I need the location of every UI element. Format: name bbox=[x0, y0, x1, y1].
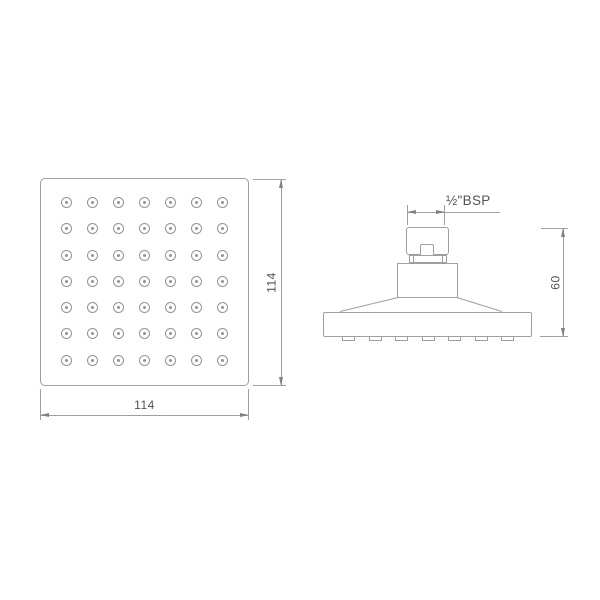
nozzle-tab bbox=[422, 337, 435, 341]
nozzle bbox=[113, 250, 124, 261]
nozzle-tab bbox=[395, 337, 408, 341]
nozzle-center-dot bbox=[65, 306, 68, 309]
nozzle bbox=[139, 197, 150, 208]
nozzle-center-dot bbox=[65, 332, 68, 335]
nozzle-center-dot bbox=[143, 306, 146, 309]
nozzle-center-dot bbox=[91, 306, 94, 309]
collar-facet-line-right bbox=[442, 255, 443, 263]
width-dim-arrow-right-icon bbox=[240, 413, 249, 417]
nozzle bbox=[113, 197, 124, 208]
nozzle-center-dot bbox=[221, 280, 224, 283]
nozzle bbox=[87, 302, 98, 313]
nozzle-tab bbox=[369, 337, 382, 341]
nozzle-center-dot bbox=[169, 332, 172, 335]
nozzle bbox=[217, 328, 228, 339]
width-dim-line bbox=[40, 415, 249, 416]
nozzle bbox=[191, 250, 202, 261]
head-plate-outline bbox=[323, 312, 532, 337]
nozzle-center-dot bbox=[221, 227, 224, 230]
nozzle-center-dot bbox=[169, 254, 172, 257]
nozzle bbox=[217, 302, 228, 313]
technical-drawing-canvas: 114 114 ½"BSP bbox=[0, 0, 600, 600]
thread-dim-extension-line-right bbox=[444, 205, 445, 225]
nozzle-center-dot bbox=[91, 359, 94, 362]
thread-dim-line bbox=[407, 212, 500, 213]
thread-size-label: ½"BSP bbox=[446, 193, 491, 208]
nozzle-center-dot bbox=[169, 306, 172, 309]
height-dim-arrow-down-icon bbox=[279, 377, 283, 386]
height-dim-arrow-up-icon bbox=[279, 179, 283, 188]
nozzle-center-dot bbox=[195, 332, 198, 335]
nozzle bbox=[217, 197, 228, 208]
nozzle bbox=[87, 223, 98, 234]
nozzle bbox=[165, 328, 176, 339]
nozzle bbox=[139, 250, 150, 261]
nozzle-center-dot bbox=[221, 306, 224, 309]
nozzle-center-dot bbox=[91, 280, 94, 283]
nozzle bbox=[61, 355, 72, 366]
flare-line-left bbox=[340, 297, 398, 312]
nozzle bbox=[61, 328, 72, 339]
nozzle bbox=[61, 250, 72, 261]
nozzle-center-dot bbox=[117, 332, 120, 335]
nozzle bbox=[139, 276, 150, 287]
nozzle bbox=[87, 276, 98, 287]
nozzle-tab-row bbox=[342, 337, 514, 341]
nozzle-center-dot bbox=[91, 332, 94, 335]
nozzle bbox=[217, 276, 228, 287]
nozzle-tab bbox=[342, 337, 355, 341]
nozzle bbox=[191, 197, 202, 208]
thread-dim-arrow-left-icon bbox=[407, 210, 416, 214]
nozzle-center-dot bbox=[195, 227, 198, 230]
height-dim-line bbox=[281, 179, 282, 386]
nozzle bbox=[191, 328, 202, 339]
nozzle bbox=[113, 328, 124, 339]
nozzle-center-dot bbox=[169, 359, 172, 362]
nozzle bbox=[217, 250, 228, 261]
nozzle-center-dot bbox=[143, 201, 146, 204]
nozzle bbox=[191, 302, 202, 313]
nozzle-center-dot bbox=[221, 332, 224, 335]
nozzle-center-dot bbox=[195, 306, 198, 309]
nozzle-center-dot bbox=[117, 227, 120, 230]
nozzle-center-dot bbox=[65, 227, 68, 230]
nozzle-center-dot bbox=[143, 359, 146, 362]
nozzle bbox=[61, 223, 72, 234]
nozzle-tab bbox=[501, 337, 514, 341]
nozzle-center-dot bbox=[169, 201, 172, 204]
nozzle bbox=[113, 302, 124, 313]
nozzle-center-dot bbox=[221, 254, 224, 257]
nozzle bbox=[113, 223, 124, 234]
nozzle bbox=[191, 355, 202, 366]
nozzle-center-dot bbox=[117, 359, 120, 362]
nozzle-center-dot bbox=[65, 280, 68, 283]
flare-line-right bbox=[457, 297, 502, 312]
nozzle bbox=[61, 276, 72, 287]
nozzle bbox=[87, 197, 98, 208]
inlet-fitting-notch bbox=[420, 244, 434, 255]
nozzle bbox=[165, 302, 176, 313]
body-block-outline bbox=[397, 263, 458, 298]
nozzle bbox=[191, 223, 202, 234]
nozzle bbox=[165, 250, 176, 261]
width-dim-arrow-left-icon bbox=[40, 413, 49, 417]
nozzle-center-dot bbox=[143, 332, 146, 335]
nozzle bbox=[87, 355, 98, 366]
nozzle bbox=[165, 355, 176, 366]
nozzle-center-dot bbox=[143, 254, 146, 257]
width-dim-label: 114 bbox=[40, 399, 249, 412]
nozzle bbox=[139, 302, 150, 313]
nozzle bbox=[191, 276, 202, 287]
nozzle-center-dot bbox=[195, 254, 198, 257]
nozzle bbox=[113, 276, 124, 287]
nozzle-center-dot bbox=[195, 280, 198, 283]
side-height-dim-label: 60 bbox=[550, 270, 563, 296]
nozzle-center-dot bbox=[117, 306, 120, 309]
nozzle-center-dot bbox=[221, 201, 224, 204]
nozzle bbox=[217, 223, 228, 234]
nozzle bbox=[217, 355, 228, 366]
nozzle-center-dot bbox=[91, 227, 94, 230]
nozzle-center-dot bbox=[65, 359, 68, 362]
nozzle bbox=[139, 328, 150, 339]
nozzle bbox=[139, 223, 150, 234]
collar-facet-line-left bbox=[413, 255, 414, 263]
nozzle-center-dot bbox=[117, 201, 120, 204]
nozzle-center-dot bbox=[91, 254, 94, 257]
nozzle bbox=[139, 355, 150, 366]
nozzle-center-dot bbox=[91, 201, 94, 204]
nozzle-center-dot bbox=[143, 227, 146, 230]
nozzle bbox=[61, 197, 72, 208]
thread-dim-arrow-right-icon bbox=[436, 210, 445, 214]
nozzle bbox=[165, 223, 176, 234]
nozzle-tab bbox=[475, 337, 488, 341]
nozzle bbox=[61, 302, 72, 313]
nozzle bbox=[165, 197, 176, 208]
nozzle-center-dot bbox=[143, 280, 146, 283]
side-height-dim-arrow-down-icon bbox=[561, 328, 565, 337]
nozzle-center-dot bbox=[65, 254, 68, 257]
nozzle-center-dot bbox=[195, 201, 198, 204]
nozzle bbox=[87, 250, 98, 261]
nozzle-center-dot bbox=[221, 359, 224, 362]
nozzle-center-dot bbox=[65, 201, 68, 204]
nozzle-center-dot bbox=[169, 280, 172, 283]
side-height-dim-line bbox=[563, 228, 564, 337]
nozzle-center-dot bbox=[117, 254, 120, 257]
thread-dim-extension-line-left bbox=[407, 205, 408, 225]
nozzle bbox=[165, 276, 176, 287]
nozzle-grid bbox=[61, 197, 228, 366]
nozzle bbox=[113, 355, 124, 366]
nozzle-center-dot bbox=[195, 359, 198, 362]
nozzle bbox=[87, 328, 98, 339]
nozzle-tab bbox=[448, 337, 461, 341]
nozzle-center-dot bbox=[117, 280, 120, 283]
height-dim-label: 114 bbox=[266, 267, 279, 299]
side-height-dim-arrow-up-icon bbox=[561, 228, 565, 237]
nozzle-center-dot bbox=[169, 227, 172, 230]
